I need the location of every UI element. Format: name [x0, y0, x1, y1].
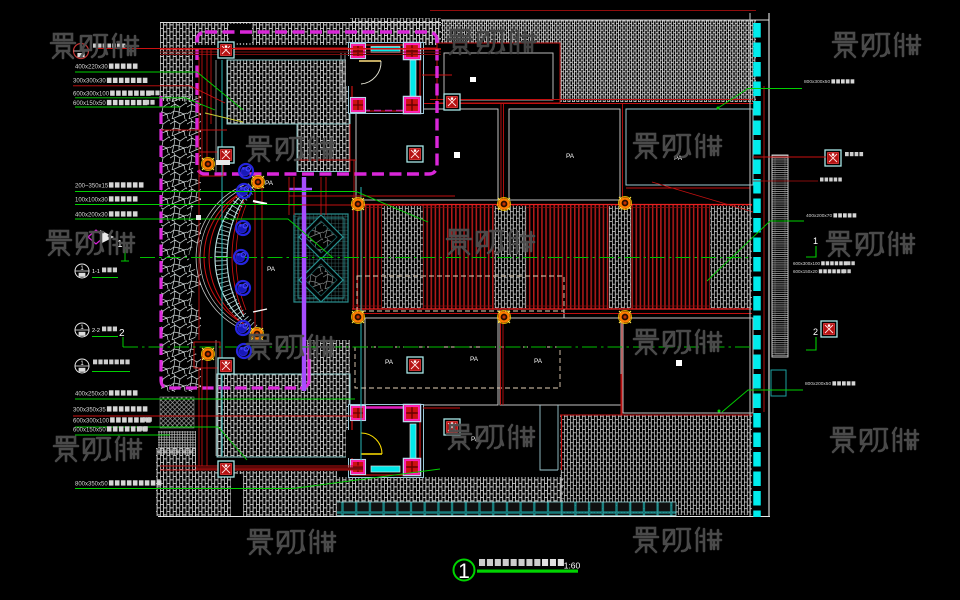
svg-text:400x200x70: 400x200x70 [806, 213, 832, 219]
svg-text:100x100x30: 100x100x30 [75, 197, 108, 203]
svg-text:300x300x30: 300x300x30 [73, 79, 106, 85]
svg-text:PA: PA [566, 153, 575, 160]
svg-text:400x200x30: 400x200x30 [75, 212, 108, 218]
svg-text:400x250x30: 400x250x30 [75, 391, 108, 397]
svg-text:600x300x100: 600x300x100 [73, 92, 110, 98]
svg-text:2-2: 2-2 [92, 328, 100, 334]
svg-text:PA: PA [470, 356, 479, 363]
svg-text:PA: PA [267, 266, 276, 273]
svg-text:PA: PA [265, 180, 274, 187]
svg-text:300x350x35: 300x350x35 [73, 407, 106, 413]
svg-text:600x150x20: 600x150x20 [793, 269, 818, 274]
svg-text:1-1: 1-1 [92, 269, 100, 275]
svg-text:800x350x50: 800x350x50 [75, 481, 108, 487]
svg-text:600x150x50: 600x150x50 [73, 101, 106, 107]
svg-text:800x300x50: 800x300x50 [804, 79, 830, 85]
svg-text:400x220x30: 400x220x30 [75, 65, 108, 71]
svg-text:800x200x50: 800x200x50 [805, 381, 831, 387]
svg-text:2: 2 [119, 328, 125, 339]
svg-text:PA: PA [534, 358, 543, 365]
svg-text:200~350x15: 200~350x15 [75, 183, 109, 189]
svg-text:600x300x100: 600x300x100 [793, 261, 821, 266]
svg-text:1: 1 [813, 236, 818, 246]
svg-text:600x150x50: 600x150x50 [73, 427, 106, 433]
svg-text:2: 2 [813, 327, 818, 337]
svg-text:1:60: 1:60 [564, 561, 581, 571]
svg-text:600x300x100: 600x300x100 [73, 418, 110, 424]
svg-text:PA: PA [385, 359, 394, 366]
svg-text:1: 1 [458, 560, 470, 583]
